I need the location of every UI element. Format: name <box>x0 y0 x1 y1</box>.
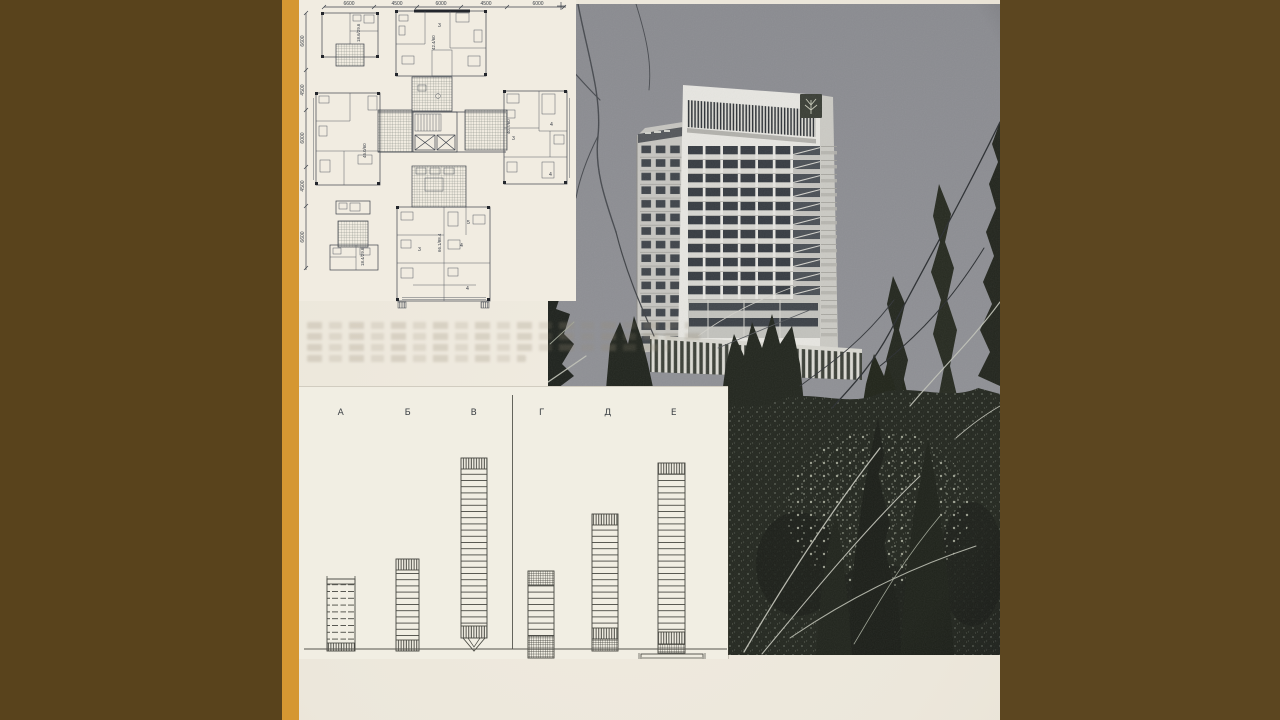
bleed-row <box>307 333 701 340</box>
cat-v: В <box>471 408 478 418</box>
area-label-bottom: 66.1/88.4 <box>437 233 442 252</box>
cat-d: Д <box>604 408 612 418</box>
plan-unit-bottom: 66.1/88.4 3 4 5 4 <box>396 206 490 308</box>
room-number-4c: 4 <box>460 243 463 249</box>
area-label-top: 42.4/60 <box>431 35 436 50</box>
room-number-4b: 4 <box>549 172 552 178</box>
cat-g: Г <box>539 408 545 418</box>
area-label-small-mid: 18.4/29.6 <box>360 247 365 266</box>
bleed-row <box>307 344 669 351</box>
plan-unit-right: 40.7/60 4 3 4 <box>503 90 570 184</box>
area-label-left: 45.0/60 <box>362 143 367 158</box>
area-label-small-top: 18.6/29.6 <box>356 23 361 42</box>
plan-unit-small-mid: 18.4/29.6 <box>330 201 378 270</box>
scanned-book-page: 6600 4500 6000 4500 6000 6600 4500 6000 … <box>0 0 1280 720</box>
dim-top-3: 6000 <box>435 1 446 7</box>
bleedthrough-text <box>307 318 705 376</box>
orange-stripe <box>282 0 299 720</box>
dim-left-3: 6000 <box>300 132 306 143</box>
right-brown-border <box>1000 0 1280 720</box>
bar-chart-panel: А Б В Г Д Е 1 2 3 <box>299 386 728 659</box>
bar-chart: А Б В Г Д Е 1 2 3 <box>299 387 728 659</box>
chart-bars <box>327 458 705 659</box>
plan-unit-top: 3 42.4/60 <box>395 10 487 77</box>
room-number-4a: 4 <box>550 122 553 128</box>
dim-top-4: 4500 <box>480 1 491 7</box>
floor-plan-drawing: 6600 4500 6000 4500 6000 6600 4500 6000 … <box>298 0 586 320</box>
bleed-row <box>307 355 526 362</box>
room-number-5: 5 <box>467 220 470 226</box>
room-number-3c: 3 <box>418 247 421 253</box>
dim-top-2: 4500 <box>391 1 402 7</box>
register-cross-icon <box>557 2 565 10</box>
dim-left-2: 4500 <box>300 84 306 95</box>
bleed-row <box>307 322 689 329</box>
cat-e: Е <box>671 408 677 418</box>
plan-unit-left: 45.0/60 <box>314 92 381 185</box>
dim-left-4: 4500 <box>300 180 306 191</box>
dim-left-5: 6600 <box>300 231 306 242</box>
dim-top-1: 6600 <box>343 1 354 7</box>
cat-a: А <box>338 408 345 418</box>
dim-top-5: 6000 <box>532 1 543 7</box>
plan-unit-small-top: 18.6/29.6 <box>321 12 379 66</box>
room-number-3b: 3 <box>512 136 515 142</box>
cat-b: Б <box>405 408 412 418</box>
area-label-right: 40.7/60 <box>506 119 511 134</box>
plan-core <box>378 77 507 207</box>
dim-left-1: 6600 <box>300 35 306 46</box>
room-number-4d: 4 <box>466 286 469 292</box>
chart-category-labels: А Б В Г Д Е <box>338 408 677 418</box>
room-number-3: 3 <box>438 23 441 29</box>
page-background: 6600 4500 6000 4500 6000 6600 4500 6000 … <box>299 0 1000 720</box>
